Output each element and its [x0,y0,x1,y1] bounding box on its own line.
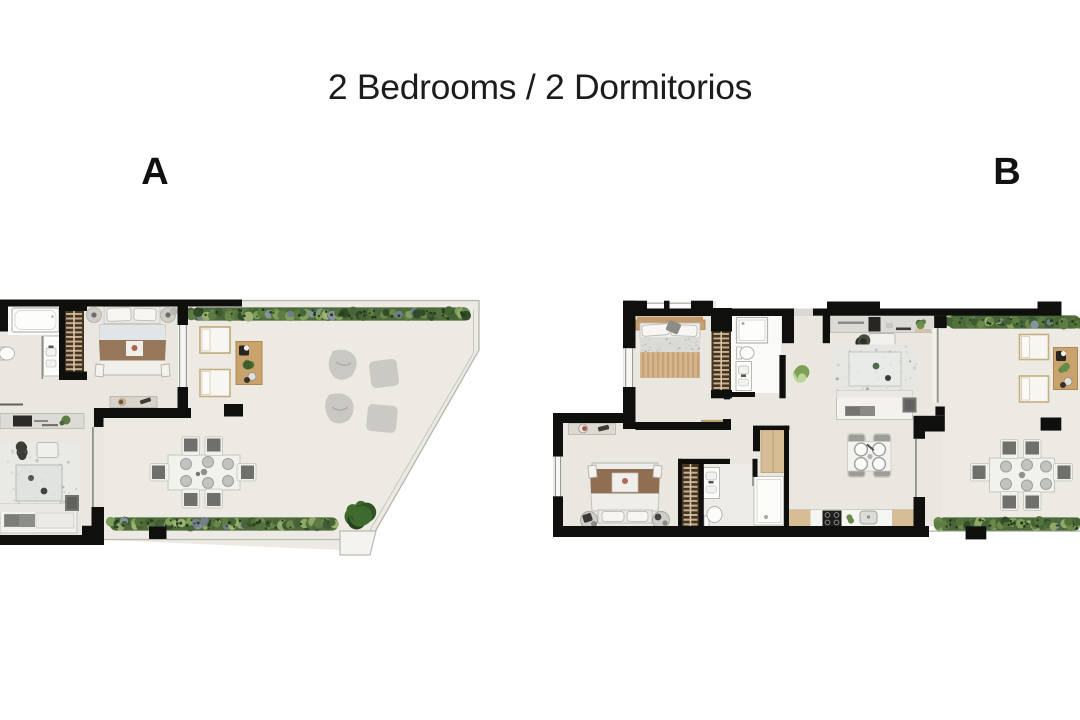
svg-text:2 Bedrooms / 2 Dormitorios: 2 Bedrooms / 2 Dormitorios [328,67,752,107]
svg-text:A: A [141,151,168,193]
svg-text:B: B [993,151,1020,193]
